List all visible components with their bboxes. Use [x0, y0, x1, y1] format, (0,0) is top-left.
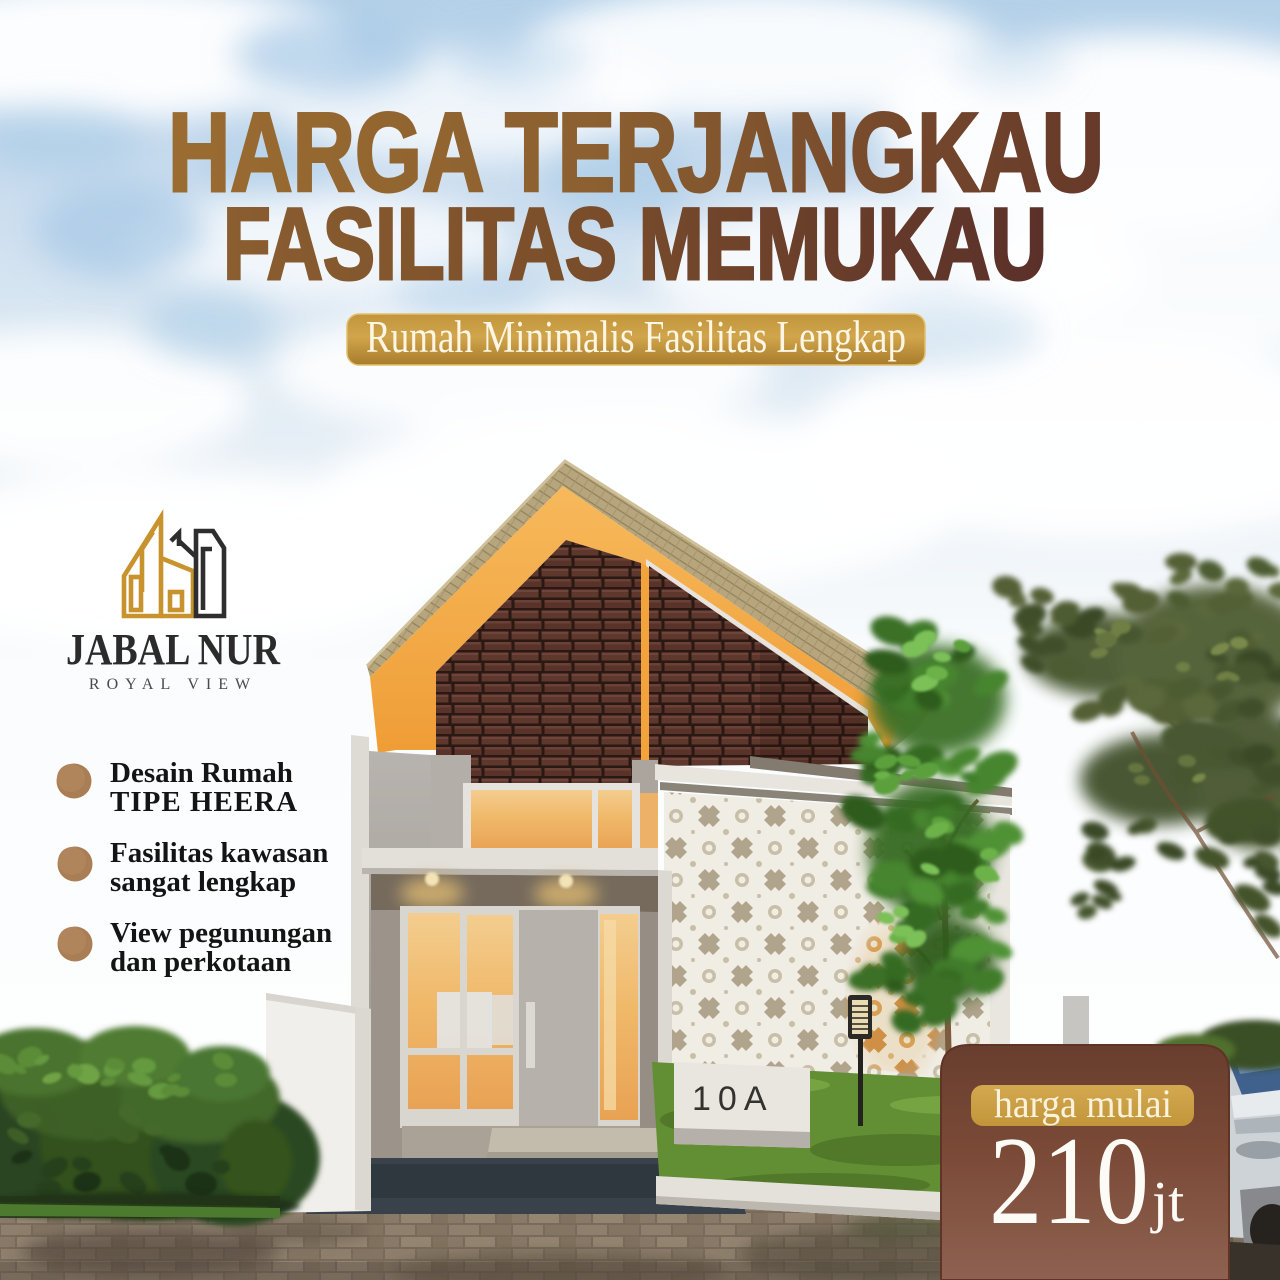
svg-text:FASILITAS MEMUKAU: FASILITAS MEMUKAU [223, 187, 1047, 301]
svg-text:ROYAL VIEW: ROYAL VIEW [89, 676, 257, 693]
svg-text:jt: jt [1150, 1169, 1184, 1234]
svg-text:10A: 10A [692, 1080, 774, 1118]
svg-text:View pegunungan: View pegunungan [110, 917, 332, 949]
svg-text:Desain Rumah: Desain Rumah [110, 757, 293, 789]
svg-text:Fasilitas kawasan: Fasilitas kawasan [110, 837, 328, 869]
svg-text:210: 210 [989, 1112, 1149, 1251]
svg-text:TIPE HEERA: TIPE HEERA [110, 786, 298, 818]
svg-text:dan perkotaan: dan perkotaan [110, 946, 291, 978]
svg-text:JABAL NUR: JABAL NUR [66, 625, 281, 674]
svg-text:sangat lengkap: sangat lengkap [110, 866, 296, 898]
svg-text:Rumah Minimalis Fasilitas Leng: Rumah Minimalis Fasilitas Lengkap [366, 312, 906, 362]
